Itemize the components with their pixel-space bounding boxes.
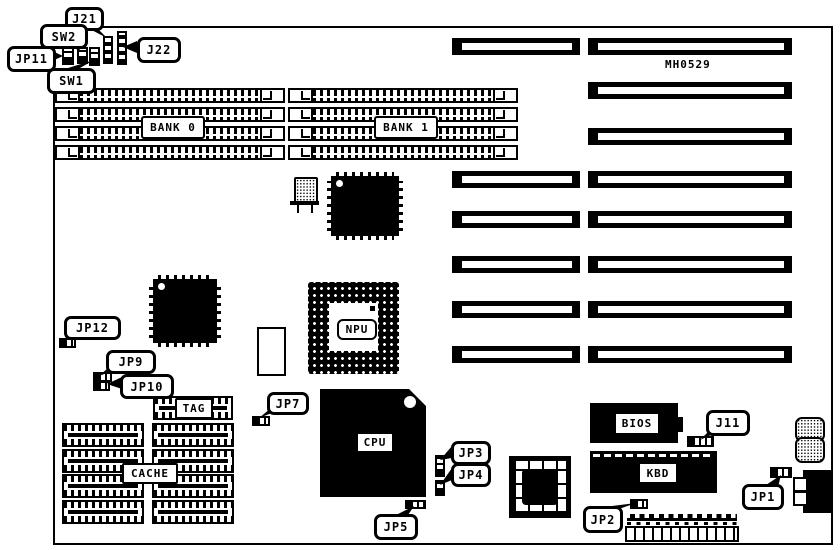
callout-jp5: JP5: [374, 514, 418, 540]
pin1-dot: [370, 306, 375, 311]
kbd-dashed-line: [593, 454, 714, 457]
isa-slot: [588, 211, 792, 228]
sw2-switch: [77, 47, 88, 64]
isa-slot: [452, 171, 580, 188]
front-panel-connector: [625, 514, 739, 542]
j22-header: [117, 31, 127, 65]
part-number: MH0529: [665, 58, 711, 71]
crystal-base: [290, 201, 319, 205]
callout-jp9: JP9: [106, 350, 156, 374]
simm-socket: [288, 145, 518, 160]
callout-jp3: JP3: [451, 441, 491, 465]
isa-slot: [588, 171, 792, 188]
crystal-leg: [297, 205, 299, 213]
bios-chip-tab: [678, 417, 683, 432]
motherboard-diagram: MH0529 BANK 0 BANK 1: [0, 0, 840, 550]
sw1-switch: [89, 47, 100, 66]
callout-jp12: JP12: [64, 316, 121, 340]
callout-j11: J11: [706, 410, 750, 436]
cache-socket: [152, 500, 234, 524]
callout-jp1: JP1: [742, 484, 784, 510]
din-port: [793, 491, 808, 506]
isa-slot: [452, 346, 580, 363]
callout-j22: J22: [137, 37, 181, 63]
callout-jp10: JP10: [120, 374, 174, 399]
j21-header: [103, 36, 113, 64]
npu-label: NPU: [337, 319, 377, 340]
isa-slot: [452, 256, 580, 273]
isa-slot: [588, 256, 792, 273]
cache-label: CACHE: [122, 463, 178, 484]
plcc-socket: [509, 456, 571, 518]
qfp-chip: [331, 176, 399, 236]
tag-label: TAG: [175, 398, 213, 419]
bank0-label: BANK 0: [141, 116, 205, 139]
callout-jp4: JP4: [451, 463, 491, 487]
jp2-jumper: [630, 499, 648, 509]
jp4-jumper: [435, 480, 445, 496]
din-port: [793, 477, 808, 492]
bank1-label: BANK 1: [374, 116, 438, 139]
pin1-dot: [404, 396, 416, 408]
cpu-label: CPU: [356, 432, 394, 453]
callout-jp7: JP7: [267, 392, 309, 415]
jp7-jumper: [252, 416, 270, 426]
jp3-jumper: [435, 455, 445, 477]
callout-jp11: JP11: [7, 46, 56, 72]
jp5-jumper: [405, 500, 426, 509]
isa-slot: [588, 82, 792, 99]
simm-socket: [55, 145, 285, 160]
isa-slot: [588, 301, 792, 318]
qfp-chip: [153, 279, 217, 343]
jp10-jumper: [93, 381, 110, 391]
jp1-jumper: [770, 467, 792, 478]
cache-socket: [152, 423, 234, 447]
callout-jp2: JP2: [583, 506, 623, 533]
j11-header: [687, 436, 714, 447]
jp11-jumper: [62, 47, 74, 65]
callout-sw1: SW1: [47, 68, 96, 94]
pin1-dot: [158, 283, 165, 290]
empty-socket: [257, 327, 286, 376]
isa-slot: [452, 301, 580, 318]
isa-slot: [588, 38, 792, 55]
isa-slot: [588, 128, 792, 145]
isa-slot: [588, 346, 792, 363]
crystal-leg: [311, 205, 313, 213]
kbd-label: KBD: [638, 462, 678, 484]
isa-slot: [452, 38, 580, 55]
cache-socket: [62, 500, 144, 524]
bios-label: BIOS: [614, 412, 660, 435]
power-connector: [795, 437, 825, 463]
pin1-dot: [336, 180, 343, 187]
simm-socket: [288, 88, 518, 103]
isa-slot: [452, 211, 580, 228]
cache-socket: [62, 423, 144, 447]
